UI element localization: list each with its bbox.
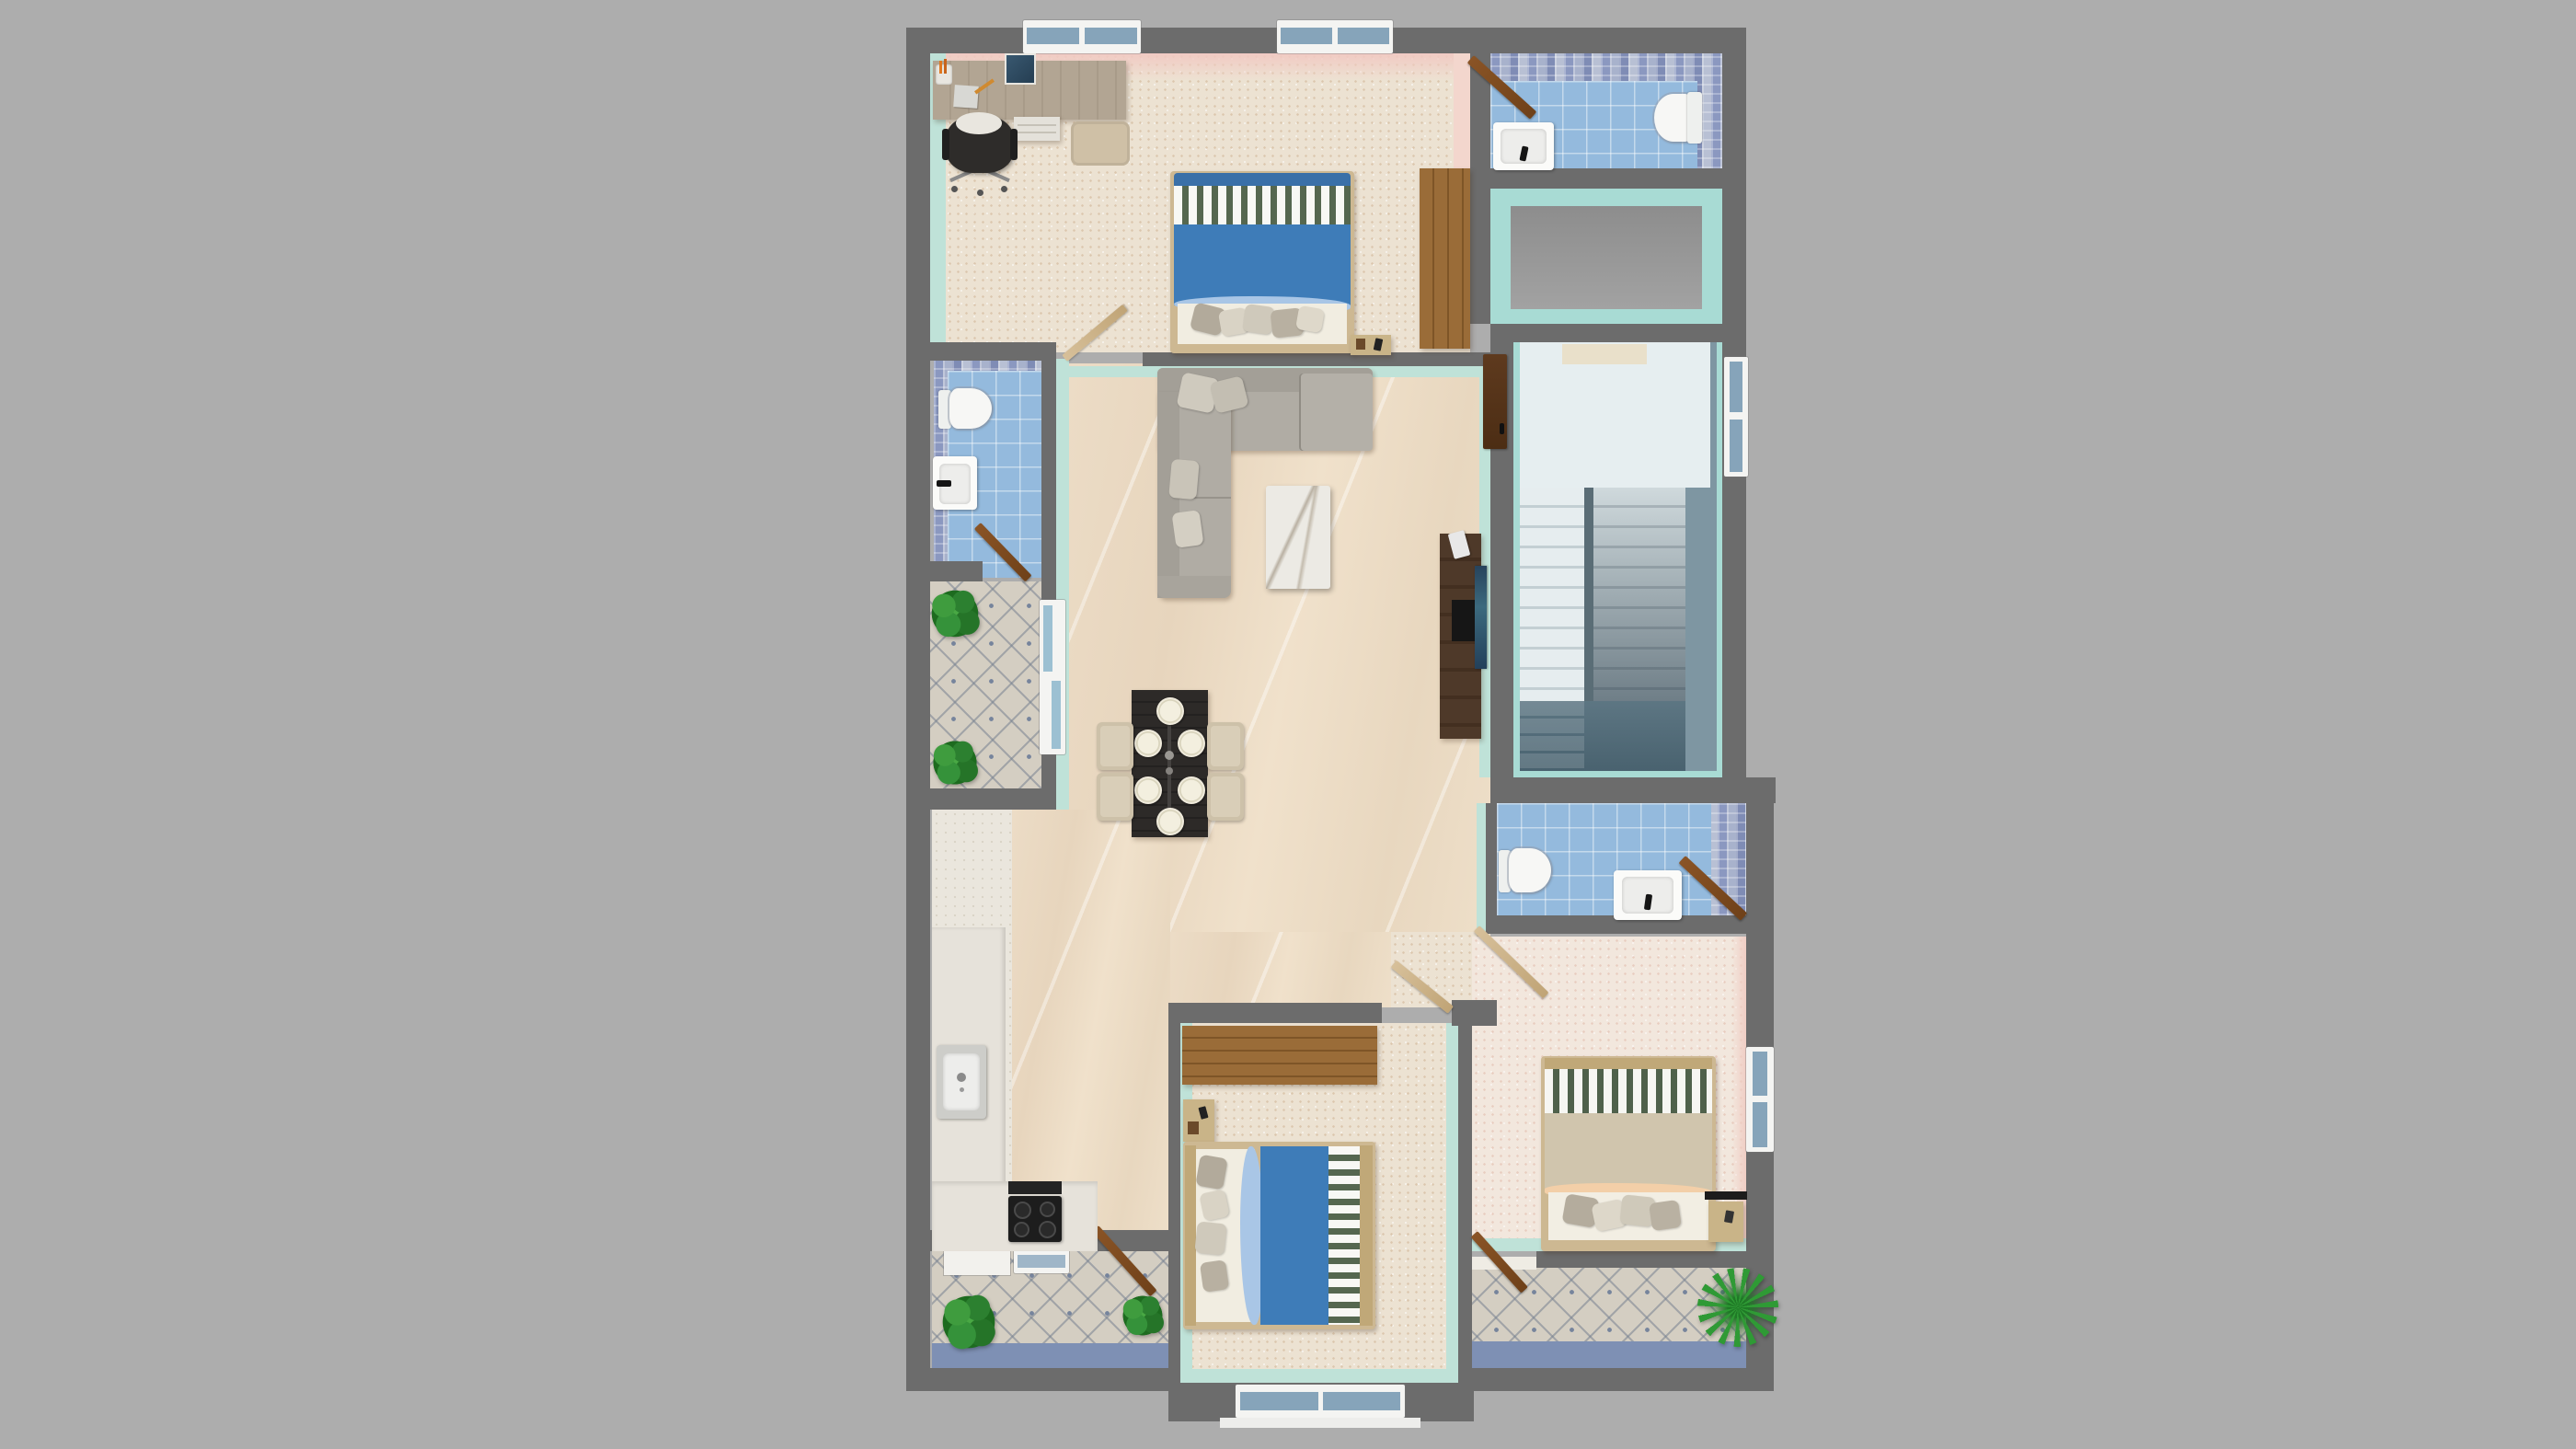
floorplan-render [0,0,2576,1449]
window-bedroom-office-1 [1023,20,1141,53]
corridor-floor [1170,932,1391,1007]
bed-striped-band [1545,1069,1712,1113]
tv-soundbar [1452,600,1475,641]
bed-bedroom3 [1541,1056,1716,1251]
dining-chair [1207,722,1244,770]
window-bedroom-office-2 [1277,20,1393,53]
sink-bathroom-top [1493,122,1554,170]
door-apartment-entry [1483,354,1507,449]
chair-caster [977,190,983,196]
marble-veins [1266,486,1330,589]
kitchen-sink [937,1045,986,1119]
wall-balcony-left-right [1041,752,1056,810]
wall-bathroom-left-top [906,342,1056,361]
wall-shaft-left [1470,189,1490,324]
window-glass [1730,362,1742,412]
chair-seat [1100,726,1130,766]
burner [1014,1222,1029,1237]
bed-blanket-blue [1260,1146,1328,1325]
chair-seat [1211,776,1240,817]
sliding-door-glass [1043,605,1052,672]
wall-outer-left [906,28,930,1368]
table-candle [1166,767,1173,775]
dining-chair [1097,722,1133,770]
nightstand-bedroom3-shelf [1705,1191,1747,1200]
plant-balcony-left-1 [927,587,983,640]
toilet-bowl [949,388,992,429]
sliding-door-balcony-left [1040,600,1065,754]
phone [1724,1210,1734,1223]
window-mullion [1332,24,1338,50]
pillow [1295,305,1325,333]
wall-stairwell-bottom [1490,777,1746,803]
wall-bedroom2-top [1170,1003,1382,1023]
window-glass [1240,1392,1318,1410]
desk-paper [953,85,979,109]
window-bedroom2 [1236,1385,1405,1418]
sofa-chaise-right [1299,374,1373,451]
nightstand-bedroom2 [1183,1099,1214,1142]
wardrobe-bedroom2 [1182,1026,1377,1085]
bedroom2-mint-right [1446,1023,1458,1383]
bed-headboard [1545,1058,1712,1069]
toilet-tank [1687,92,1702,144]
sink-faucet [937,480,951,487]
window-glass [1753,1102,1767,1147]
pillow [1649,1200,1682,1231]
balcony-bl-doorframe [944,1248,1010,1275]
sofa-pillow [1172,510,1204,548]
stair-flight-up [1520,488,1584,701]
sink-bathroom-left [933,456,977,510]
plant-balcony-bl-1 [940,1290,997,1354]
pillow [1195,1155,1227,1190]
sink-drain [960,1087,964,1092]
pens [944,59,947,74]
bed-headboard [1185,1145,1196,1326]
desk-book [1005,53,1036,85]
tv-screen [1475,566,1487,669]
window-stairwell [1724,357,1748,477]
wall-balcony-left-bottom [906,788,1056,810]
office-chair [942,109,1018,197]
drawer-line [1018,132,1056,133]
wall-bathroom-top-bottom [1470,168,1746,189]
desk-pen-cup [936,64,952,85]
bed-footboard [1360,1145,1373,1326]
wall-bathroom-right-left [1486,803,1497,915]
bathroom-right-mint-outside [1477,803,1486,932]
sink-bathroom-right [1614,870,1682,920]
wall-bedroom2-top-post [1452,1000,1497,1026]
toilet-bowl [1509,848,1551,892]
nightstand-bedroom3 [1708,1202,1743,1242]
chair-seat [1100,776,1130,817]
dining-plate [1156,808,1184,835]
balcony-bottom-right-edge [1472,1341,1746,1368]
dining-plate [1156,697,1184,725]
bedroom2-mint-bottom [1180,1369,1458,1383]
nightstand-bedroom-office [1351,335,1391,355]
wall-balcony-br-bottom [1472,1368,1774,1391]
window-glass [1018,1255,1065,1268]
wardrobe-bedroom-office [1420,168,1470,349]
burner [1014,1202,1031,1219]
desk-drawer-unit [1014,117,1060,141]
drawer-line [1018,124,1056,126]
dining-plate [1134,776,1162,804]
dining-plate [1178,730,1205,757]
stairwell-lower-steps [1520,701,1584,771]
dining-chair [1097,773,1133,821]
sofa-pillow [1168,459,1200,500]
small-box [1356,339,1365,350]
stool [1071,121,1130,166]
pillow [1199,1189,1230,1221]
dining-chair [1207,773,1244,821]
wall-shaft-bottom [1490,324,1746,342]
stairwell-paint-bottom [1513,771,1723,777]
bed-striped-band [1328,1146,1360,1325]
coffee-table-marble [1266,486,1330,589]
chair-caster [951,186,958,192]
burner [1040,1202,1055,1217]
chair-arm [1010,129,1018,160]
balcony-bl-window [1014,1249,1069,1273]
bed-bedroom-office [1170,171,1354,353]
bedroom-office-pink-wall-right [1454,52,1470,168]
chair-arm [942,129,949,160]
sofa-armrest-bottom [1157,576,1231,598]
small-box [1188,1121,1199,1134]
stair-stringer [1584,488,1593,701]
wall-bathroom-left-bottom-stub [929,561,983,581]
wall-balcony-bl-bottom [906,1368,1170,1391]
chair-seat [1211,726,1240,766]
pens [939,61,942,74]
bed-blanket-tan [1545,1113,1712,1192]
door-entry-handle [1500,423,1504,434]
window-glass [1753,1052,1767,1096]
bed-blanket-blue [1174,224,1351,305]
phone [1374,338,1384,351]
chair-caster [1001,186,1007,192]
bed-headboard [1174,173,1351,186]
sofa-sectional [1157,368,1373,598]
window-bedroom2-sill [1220,1418,1420,1428]
bed-striped-band [1174,186,1351,224]
kitchen-vent [1008,1181,1062,1194]
wall-bedroom3-balcony-b [1536,1251,1746,1268]
phone [1198,1106,1208,1120]
wall-bedroom-office-bottom [1143,352,1513,366]
pillow [1200,1259,1229,1293]
bed-bedroom2 [1183,1142,1375,1329]
dining-plate [1178,776,1205,804]
kitchen-cooktop [1008,1196,1062,1242]
window-glass [1730,420,1742,472]
dining-plate [1134,730,1162,757]
stair-flight-down-shadow [1593,488,1685,701]
wall-bedroom2-right [1458,1023,1472,1389]
chair-headrest [956,112,1002,134]
window-glass [1323,1392,1400,1410]
window-mullion [1079,24,1085,50]
burner [1039,1221,1056,1238]
wall-bedroom2-left [1168,1003,1180,1421]
table-candle [1165,751,1174,760]
palm-balcony-br [1697,1268,1778,1347]
sink-basin [943,1053,980,1110]
plant-balcony-left-2 [929,738,981,788]
shaft-void-floor [1511,206,1702,309]
screenshot-canvas: { "scene": { "type": "3d-floorplan-rende… [0,0,2576,1449]
plant-balcony-bl-2 [1119,1294,1167,1338]
sliding-door-glass [1052,681,1061,749]
wall-bathroom-left-right [1041,342,1056,605]
pillow [1194,1221,1226,1255]
stairwell [1513,342,1723,777]
window-bedroom3 [1746,1047,1774,1152]
sink-faucet [957,1073,966,1082]
hallway-floor [1012,810,1170,1230]
stairwell-paint-left [1513,342,1520,777]
stair-threshold [1562,344,1647,364]
